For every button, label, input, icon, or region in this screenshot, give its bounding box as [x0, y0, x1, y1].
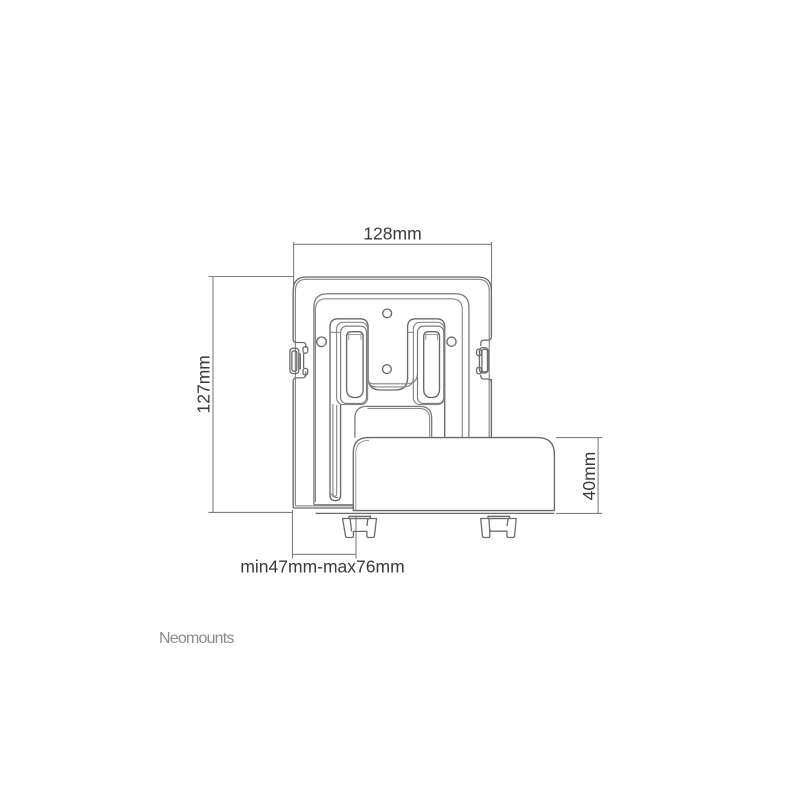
svg-text:min47mm-max76mm: min47mm-max76mm [240, 557, 404, 577]
svg-text:Neomounts: Neomounts [159, 630, 234, 647]
svg-text:128mm: 128mm [363, 224, 421, 244]
svg-text:40mm: 40mm [579, 452, 599, 501]
svg-text:127mm: 127mm [194, 355, 214, 413]
